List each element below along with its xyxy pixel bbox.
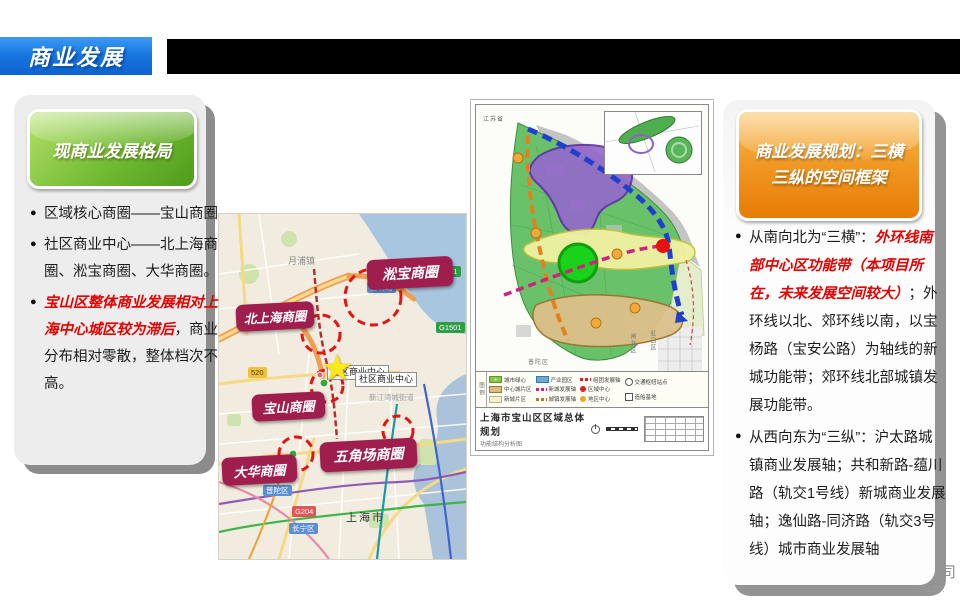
community-center-label: 社区商业中心 bbox=[355, 372, 417, 387]
bullet-text: ；外环线以北、郊环线以南，以宝杨路（宝安公路）为轴线的新城功能带；郊环线北部城镇… bbox=[749, 286, 938, 414]
north-arrow-icon bbox=[591, 425, 600, 434]
bullet-dot-icon: ● bbox=[30, 296, 44, 398]
legend-item: 新城发展轴 bbox=[536, 385, 577, 393]
business-circle-label-dahua: 大华商圈 bbox=[221, 454, 297, 486]
road-number-badge: G204 bbox=[292, 506, 316, 517]
legend-swatch-square bbox=[625, 393, 633, 401]
legend-item: 新城片区 bbox=[489, 395, 532, 403]
bullet-text: 社区商业中心——北上海商圈、淞宝商圈、大华商圈。 bbox=[44, 237, 218, 280]
legend-item: 中心城片区 bbox=[489, 385, 532, 393]
watermark-ltd-text: ...LTD. bbox=[921, 585, 944, 594]
current-pattern-card: 现商业发展格局 ● 区域核心商圈——宝山商圈 ● 社区商业中心——北上海商圈、淞… bbox=[14, 95, 206, 465]
map-town-label: 月浦镇 bbox=[288, 254, 315, 267]
scale-bar bbox=[606, 427, 638, 431]
bullet-dot-icon: ● bbox=[735, 230, 749, 420]
bullet-dot-icon: ● bbox=[735, 430, 749, 564]
planning-map-subtitle: 功能结构分析图 bbox=[480, 439, 585, 448]
legend-swatch-pale bbox=[489, 396, 502, 403]
slide: 商业发展 司 ...LTD. 现商业发展格局 ● 区域核心商圈——宝山商圈 ● … bbox=[0, 0, 960, 600]
legend-swatch-yellow-dot bbox=[580, 396, 586, 402]
drawing-info-table bbox=[644, 416, 704, 442]
business-circle-label-wujiaochang: 五角场商圈 bbox=[319, 437, 417, 472]
planning-map-image: 江苏省 普陀区 闸北区 虹口区 图例 城市绿心 中心城片区 新城片区 产业园区 … bbox=[470, 99, 714, 456]
legend-swatch-tan bbox=[489, 386, 502, 393]
business-circle-label-baoshan: 宝山商圈 bbox=[251, 391, 325, 422]
left-card-header-label: 现商业发展格局 bbox=[45, 137, 180, 162]
legend-item: 城镇发展轴 bbox=[536, 395, 577, 403]
planning-map-title-block: 上海市宝山区区域总体规划 功能结构分析图 bbox=[476, 407, 708, 450]
business-circle-label-songbao: 淞宝商圈 bbox=[366, 256, 453, 290]
planning-map-inset bbox=[604, 111, 702, 175]
bullet-dot-icon: ● bbox=[30, 207, 44, 228]
planning-map-drawing: 江苏省 普陀区 闸北区 虹口区 bbox=[476, 105, 708, 371]
left-card-header: 现商业发展格局 bbox=[27, 109, 197, 189]
legend-item: 组团发展轴 bbox=[580, 376, 621, 384]
bullet-text: 区域核心商圈——宝山商圈 bbox=[44, 206, 218, 222]
planning-map-legend: 图例 城市绿心 中心城片区 新城片区 产业园区 新城发展轴 城镇发展轴 组团发展… bbox=[476, 371, 708, 407]
street-map-image: 月浦镇 新江湾城街道 上海市 普陀区 长宁区 G1501 G1501 宝杨路 5… bbox=[218, 213, 467, 560]
page-title: 商业发展 bbox=[28, 40, 124, 72]
neighbor-district-label: 虹口区 bbox=[648, 330, 657, 351]
right-card-header-label: 商业发展规划：三横三纵的空间框架 bbox=[739, 139, 919, 192]
legend-item: 产业园区 bbox=[536, 376, 577, 384]
bullet-dot-icon: ● bbox=[30, 238, 44, 286]
business-circle-label-beishanghai: 北上海商圈 bbox=[235, 301, 314, 332]
legend-swatch-red-dash bbox=[580, 378, 591, 381]
bullet-item: ● 从南向北为“三横”：外环线南部中心区功能带（本项目所在，未来发展空间较大）；… bbox=[735, 224, 947, 420]
legend-item: 造船基地 bbox=[625, 393, 668, 401]
province-label: 江苏省 bbox=[483, 114, 504, 123]
map-city-label: 上海市 bbox=[346, 509, 385, 525]
legend-swatch-circle bbox=[625, 378, 633, 386]
legend-swatch-red-dot bbox=[580, 386, 586, 392]
legend-item: 区域中心 bbox=[580, 385, 621, 393]
map-street-label: 新江湾城街道 bbox=[369, 392, 414, 403]
neighbor-district-label: 普陀区 bbox=[528, 357, 549, 366]
map-district-badge: 长宁区 bbox=[289, 523, 318, 534]
left-card-bullets: ● 区域核心商圈——宝山商圈 ● 社区商业中心——北上海商圈、淞宝商圈、大华商圈… bbox=[14, 201, 230, 402]
title-underline-bar bbox=[167, 39, 960, 74]
project-site-star-icon: ★ bbox=[321, 350, 353, 386]
legend-title: 图例 bbox=[476, 372, 487, 407]
planning-map-frame: 江苏省 普陀区 闸北区 虹口区 图例 城市绿心 中心城片区 新城片区 产业园区 … bbox=[475, 104, 709, 451]
road-number-badge: 520 bbox=[248, 367, 267, 378]
bullet-item: ● 社区商业中心——北上海商圈、淞宝商圈、大华商圈。 bbox=[30, 232, 222, 286]
legend-swatch-magenta-dash bbox=[536, 388, 547, 391]
bullet-text: 从南向北为“三横”： bbox=[749, 230, 875, 246]
slide-title-banner: 商业发展 bbox=[0, 37, 152, 75]
map-district-badge: 普陀区 bbox=[263, 485, 292, 496]
right-card-header: 商业发展规划：三横三纵的空间框架 bbox=[736, 109, 922, 221]
right-card-bullets: ● 从南向北为“三横”：外环线南部中心区功能带（本项目所在，未来发展空间较大）；… bbox=[723, 224, 953, 568]
road-number-badge: G1501 bbox=[436, 322, 465, 333]
legend-swatch-blue bbox=[536, 376, 549, 383]
legend-swatch-green bbox=[489, 376, 502, 383]
bullet-item: ● 从西向东为“三纵”：沪太路城镇商业发展轴；共和新路-蕴川路（轨交1号线）新城… bbox=[735, 424, 947, 564]
legend-item: 地区中心 bbox=[580, 395, 621, 403]
legend-swatch-brown-dash bbox=[536, 398, 547, 401]
bullet-item: ● 区域核心商圈——宝山商圈 bbox=[30, 201, 222, 228]
planning-framework-card: 商业发展规划：三横三纵的空间框架 ● 从南向北为“三横”：外环线南部中心区功能带… bbox=[723, 100, 935, 585]
legend-item: 城市绿心 bbox=[489, 376, 532, 384]
planning-map-title: 上海市宝山区区域总体规划 bbox=[480, 410, 585, 438]
legend-item: 交通枢纽站点 bbox=[625, 378, 668, 386]
bullet-text: 从西向东为“三纵”：沪太路城镇商业发展轴；共和新路-蕴川路（轨交1号线）新城商业… bbox=[749, 430, 946, 558]
neighbor-district-label: 闸北区 bbox=[628, 333, 637, 354]
bullet-item: ● 宝山区整体商业发展相对上海中心城区较为滞后，商业分布相对零散，整体档次不高。 bbox=[30, 290, 222, 398]
